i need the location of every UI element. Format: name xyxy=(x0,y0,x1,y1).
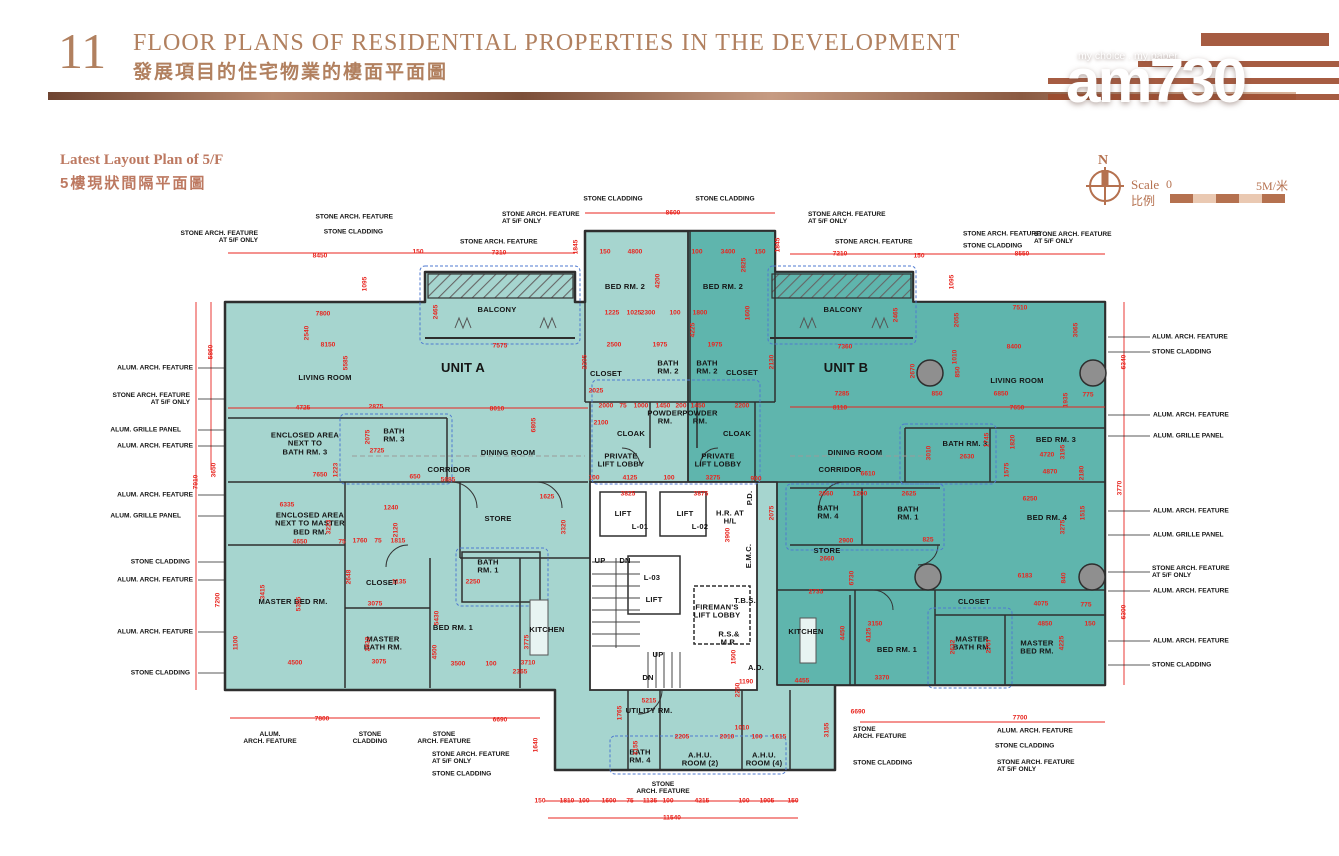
north-compass-icon xyxy=(1086,167,1124,205)
brochure-page: 11 FLOOR PLANS OF RESIDENTIAL PROPERTIES… xyxy=(0,0,1339,856)
floor-plan-drawing xyxy=(0,0,1339,856)
